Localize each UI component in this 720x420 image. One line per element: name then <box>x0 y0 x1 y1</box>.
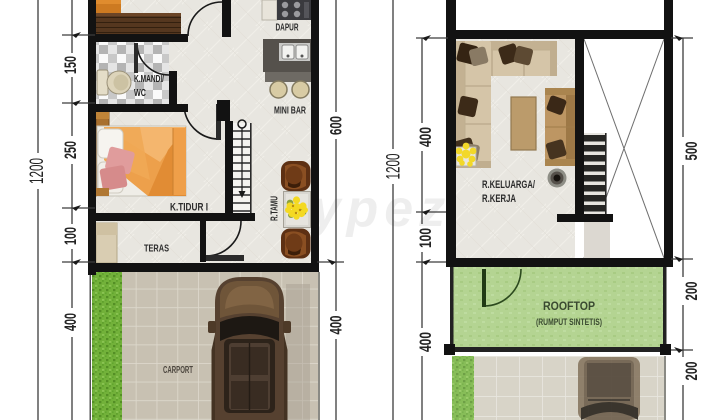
svg-text:400: 400 <box>61 313 80 331</box>
svg-text:(RUMPUT SINTETIS): (RUMPUT SINTETIS) <box>536 317 602 328</box>
svg-text:400: 400 <box>416 127 435 147</box>
svg-text:100: 100 <box>61 227 80 245</box>
svg-text:1200: 1200 <box>384 154 405 180</box>
svg-text:K.TIDUR I: K.TIDUR I <box>170 202 208 214</box>
svg-text:1200: 1200 <box>27 158 48 184</box>
svg-text:600: 600 <box>327 116 346 135</box>
svg-text:R.TAMU: R.TAMU <box>270 196 281 221</box>
svg-text:R.KELUARGA/: R.KELUARGA/ <box>482 179 535 191</box>
svg-text:400: 400 <box>327 316 346 335</box>
svg-text:200: 200 <box>682 362 701 381</box>
svg-text:250: 250 <box>61 141 80 159</box>
svg-text:ROOFTOP: ROOFTOP <box>543 301 595 313</box>
svg-text:150: 150 <box>61 56 80 74</box>
svg-text:K.MANDI/: K.MANDI/ <box>134 74 164 85</box>
svg-text:TERAS: TERAS <box>144 243 169 255</box>
svg-text:R.KERJA: R.KERJA <box>482 193 516 205</box>
svg-text:500: 500 <box>682 142 701 161</box>
svg-text:DAPUR: DAPUR <box>276 22 299 34</box>
svg-text:100: 100 <box>416 228 435 248</box>
svg-text:WC: WC <box>134 88 146 99</box>
svg-text:400: 400 <box>416 332 435 352</box>
svg-text:200: 200 <box>682 282 701 301</box>
svg-text:CARPORT: CARPORT <box>163 364 193 376</box>
svg-text:MINI BAR: MINI BAR <box>274 105 306 117</box>
